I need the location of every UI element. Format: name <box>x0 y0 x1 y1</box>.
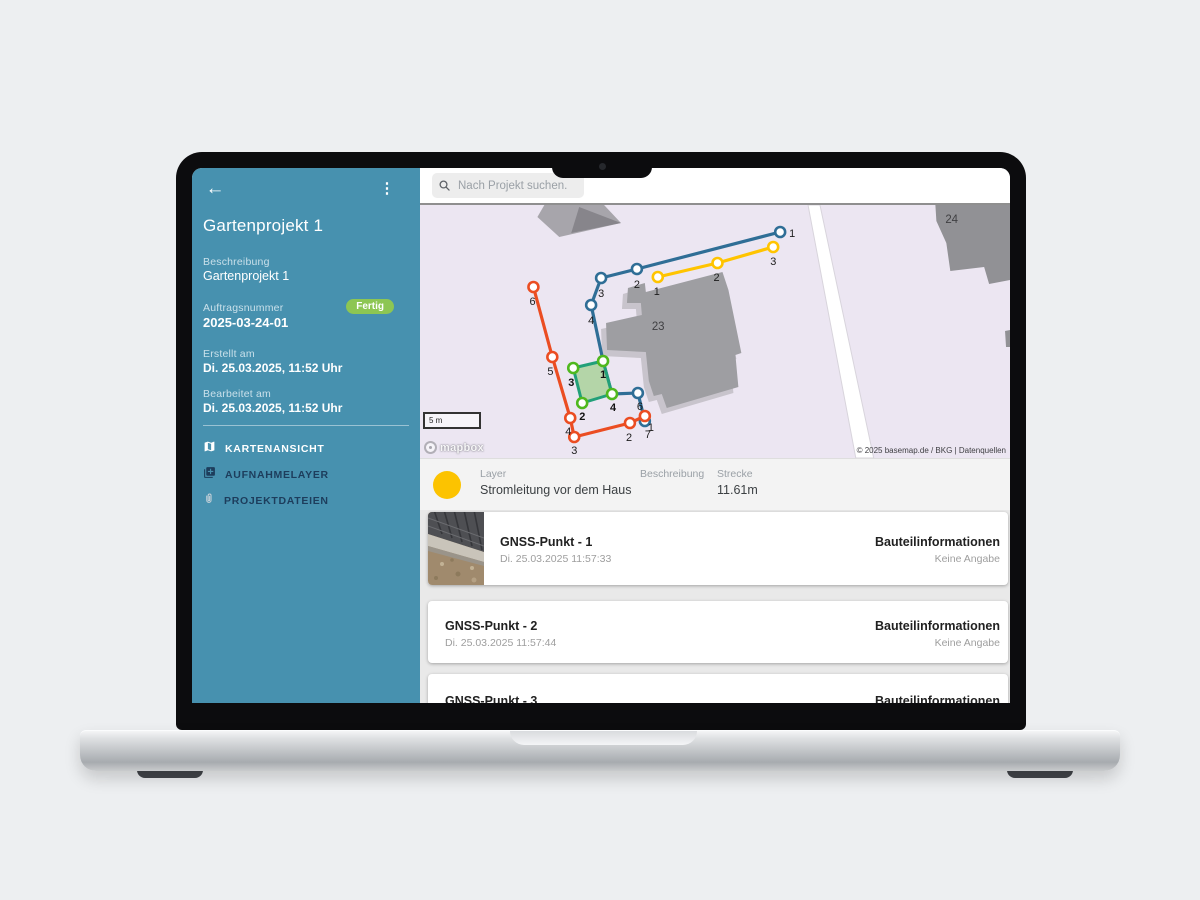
layers-plus-icon <box>203 466 216 484</box>
sidebar-divider <box>203 425 409 426</box>
point-number-label: 3 <box>770 256 776 268</box>
gnss-points-list: GNSS-Punkt - 1 Di. 25.03.2025 11:57:33 B… <box>420 510 1010 703</box>
laptop-lid-scoop <box>510 731 697 745</box>
sidebar-item-label: PROJEKTDATEIEN <box>224 495 329 507</box>
list-item-gnss-punkt-1[interactable]: GNSS-Punkt - 1 Di. 25.03.2025 11:57:33 B… <box>428 512 1008 585</box>
main-panel: 23241234671236543211423 5 m mapbox © 202… <box>420 168 1010 703</box>
map-canvas[interactable]: 23241234671236543211423 <box>420 205 1010 458</box>
macbook-notch <box>552 152 652 178</box>
point-details-label: Bauteilinformationen <box>875 694 1000 703</box>
point-details-label: Bauteilinformationen <box>875 619 1000 633</box>
layer-color-dot <box>433 471 461 499</box>
building-number-label: 23 <box>652 321 665 333</box>
layer-name-column: Layer Stromleitung vor dem Haus <box>480 468 631 497</box>
point-timestamp: Di. 25.03.2025 11:57:33 <box>500 553 611 565</box>
point-number-label: 2 <box>714 272 720 284</box>
point-number-label: 3 <box>598 288 604 300</box>
point-title: GNSS-Punkt - 2 <box>445 619 537 633</box>
field-label-bearbeitet-am: Bearbeitet am <box>203 388 271 400</box>
orange-line-point-1[interactable] <box>640 411 650 421</box>
laptop-base <box>80 730 1120 771</box>
strecke-value: 11.61m <box>717 483 758 497</box>
point-number-label: 1 <box>648 422 654 434</box>
page-background: ← ⋮ Gartenprojekt 1 Beschreibung Gartenp… <box>0 0 1200 900</box>
sidebar-item-aufnahmelayer[interactable]: AUFNAHMELAYER <box>203 465 329 485</box>
paperclip-icon <box>203 492 215 510</box>
point-number-label: 2 <box>634 279 640 291</box>
road <box>808 205 874 458</box>
orange-line-point-2[interactable] <box>625 418 635 428</box>
project-sidebar: ← ⋮ Gartenprojekt 1 Beschreibung Gartenp… <box>192 168 420 703</box>
point-number-label: 3 <box>571 445 577 457</box>
green-area-point-1[interactable] <box>598 356 608 366</box>
laptop-screen-bezel: ← ⋮ Gartenprojekt 1 Beschreibung Gartenp… <box>176 152 1026 730</box>
mapbox-logo-icon <box>424 441 437 454</box>
layer-value: Stromleitung vor dem Haus <box>480 483 631 497</box>
building-number-label: 24 <box>945 214 958 226</box>
orange-line-point-5[interactable] <box>547 352 557 362</box>
point-details-value: Keine Angabe <box>935 553 1000 565</box>
overflow-menu-button[interactable]: ⋮ <box>378 176 396 202</box>
sidebar-item-label: KARTENANSICHT <box>225 443 325 455</box>
app-header <box>420 168 1010 205</box>
layer-label: Layer <box>480 468 631 480</box>
search-input[interactable] <box>456 179 580 193</box>
point-number-label: 5 <box>547 366 553 378</box>
point-number-label: 4 <box>610 402 617 414</box>
point-timestamp: Di. 25.03.2025 11:57:44 <box>445 637 556 649</box>
point-number-label: 1 <box>654 286 660 298</box>
building-footprint <box>1005 330 1010 347</box>
sidebar-item-kartenansicht[interactable]: KARTENANSICHT <box>203 439 325 459</box>
orange-line-point-6[interactable] <box>528 282 538 292</box>
blue-line-point-1[interactable] <box>775 227 785 237</box>
point-photo-thumbnail <box>428 512 484 585</box>
building-footprint <box>606 272 741 408</box>
map-icon <box>203 440 216 458</box>
point-number-label: 4 <box>588 315 594 327</box>
green-area-point-4[interactable] <box>607 389 617 399</box>
strecke-column: Strecke 11.61m <box>717 468 758 497</box>
blue-line-point-4[interactable] <box>586 300 596 310</box>
layer-info-panel: Layer Stromleitung vor dem Haus Beschrei… <box>420 458 1010 510</box>
field-value-auftragsnummer: 2025-03-24-01 <box>203 315 288 330</box>
blue-line-point-3[interactable] <box>596 273 606 283</box>
sidebar-item-label: AUFNAHMELAYER <box>225 469 329 481</box>
point-details-label: Bauteilinformationen <box>875 535 1000 549</box>
field-value-bearbeitet-am: Di. 25.03.2025, 11:52 Uhr <box>203 401 342 415</box>
point-number-label: 1 <box>600 369 606 381</box>
list-item-gnss-punkt-2[interactable]: GNSS-Punkt - 2 Di. 25.03.2025 11:57:44 B… <box>428 601 1008 663</box>
point-number-label: 6 <box>529 296 535 308</box>
app-window: ← ⋮ Gartenprojekt 1 Beschreibung Gartenp… <box>192 168 1010 703</box>
point-number-label: 4 <box>565 426 571 438</box>
search-icon <box>438 179 451 192</box>
map-view[interactable]: 23241234671236543211423 5 m mapbox © 202… <box>420 205 1010 458</box>
yellow-line-point-1[interactable] <box>653 272 663 282</box>
blue-line-point-6[interactable] <box>633 388 643 398</box>
map-scale-bar: 5 m <box>423 412 481 429</box>
point-number-label: 2 <box>626 432 632 444</box>
point-title: GNSS-Punkt - 3 <box>445 694 537 703</box>
yellow-line-point-2[interactable] <box>713 258 723 268</box>
map-attribution[interactable]: © 2025 basemap.de / BKG | Datenquellen <box>857 446 1006 455</box>
blue-line-point-2[interactable] <box>632 264 642 274</box>
beschreibung-column: Beschreibung <box>640 468 704 480</box>
sidebar-item-projektdateien[interactable]: PROJEKTDATEIEN <box>203 491 329 511</box>
status-badge: Fertig <box>346 299 394 314</box>
orange-line-point-4[interactable] <box>565 413 575 423</box>
point-details-value: Keine Angabe <box>935 637 1000 649</box>
project-title: Gartenprojekt 1 <box>203 216 323 236</box>
webcam-icon <box>599 163 606 170</box>
green-area-point-3[interactable] <box>568 363 578 373</box>
point-number-label: 2 <box>579 411 585 423</box>
strecke-label: Strecke <box>717 468 758 480</box>
green-area-point-2[interactable] <box>577 398 587 408</box>
mapbox-logo[interactable]: mapbox <box>424 441 484 454</box>
field-label-auftragsnummer: Auftragsnummer <box>203 302 283 314</box>
field-label-beschreibung: Beschreibung <box>203 256 270 268</box>
yellow-line-point-3[interactable] <box>768 242 778 252</box>
point-number-label: 3 <box>568 377 574 389</box>
beschreibung-label: Beschreibung <box>640 468 704 480</box>
point-number-label: 1 <box>789 228 795 240</box>
point-title: GNSS-Punkt - 1 <box>500 535 592 549</box>
back-button[interactable]: ← <box>202 176 228 202</box>
mapbox-logo-text: mapbox <box>440 442 484 454</box>
list-item-gnss-punkt-3[interactable]: GNSS-Punkt - 3 Bauteilinformationen <box>428 674 1008 703</box>
field-value-erstellt-am: Di. 25.03.2025, 11:52 Uhr <box>203 361 342 375</box>
field-value-beschreibung: Gartenprojekt 1 <box>203 269 289 283</box>
field-label-erstellt-am: Erstellt am <box>203 348 255 360</box>
